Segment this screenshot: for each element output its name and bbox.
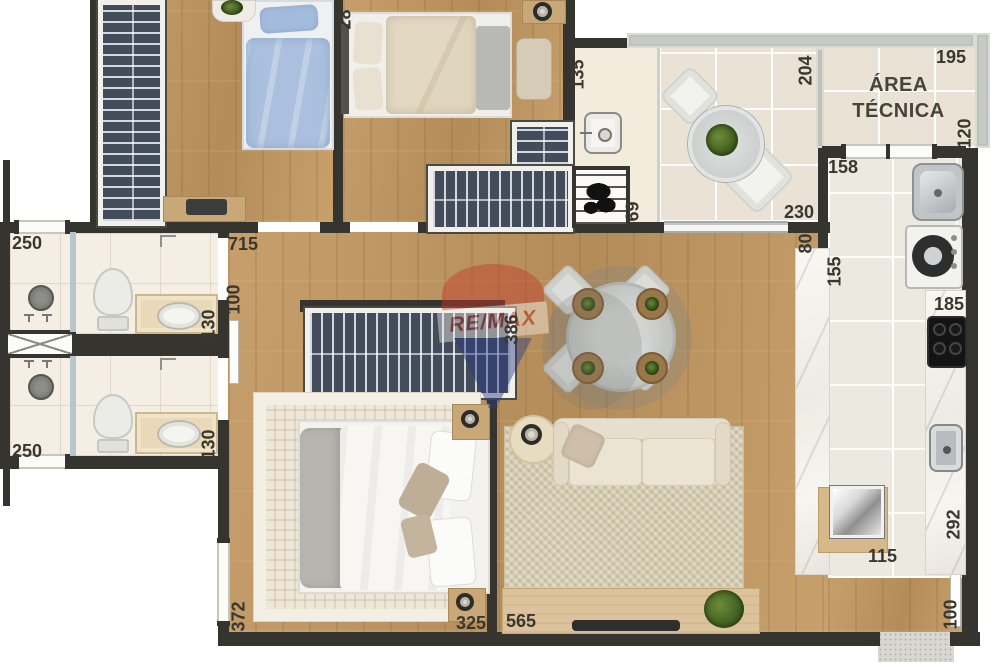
bathroom1-window [14, 220, 70, 234]
sink-icon [157, 420, 201, 448]
dim-bath1-width: 130 [197, 304, 221, 344]
dim-pass-width: 80 [793, 226, 819, 260]
dim-grill-width: 135 [564, 52, 592, 96]
wall [70, 334, 218, 356]
burner [949, 342, 962, 355]
washer-knob [951, 263, 957, 269]
shower-glass-panel [70, 232, 76, 332]
master-bed [298, 420, 490, 594]
washer-knob [951, 235, 957, 241]
place-setting [636, 352, 668, 384]
toilet-icon [93, 394, 133, 454]
dim-kitchen-width: 115 [868, 546, 897, 567]
dim-grill-depth: 69 [621, 192, 645, 230]
dim-text: 80 [796, 233, 817, 253]
dim-area-tecnica-width: 195 [936, 47, 966, 68]
dim-bedroom2-top: 28 [332, 0, 358, 38]
area-tecnica-label: ÁREA TÉCNICA [826, 60, 971, 136]
dim-text: 155 [825, 256, 846, 286]
closet-rod [132, 5, 134, 221]
dim-living-width: 565 [506, 611, 536, 632]
duvet [386, 16, 476, 114]
floor-plan: ÁREA TÉCNICA [0, 0, 1000, 667]
toilet-tank [97, 439, 129, 453]
dim-text: 100 [941, 599, 962, 629]
speaker-icon [533, 2, 552, 21]
closet-rod [310, 353, 510, 355]
dim-text: 28 [335, 9, 356, 29]
dim-text: 69 [623, 201, 644, 221]
plant-icon [706, 124, 738, 156]
plant-icon [704, 590, 744, 628]
dim-kitchen-length: 292 [940, 502, 968, 546]
dim-service-width: 158 [828, 157, 858, 178]
place-setting [636, 288, 668, 320]
shower-valve-icon [24, 314, 34, 316]
double-bed [344, 12, 512, 118]
sofa-armrest [715, 422, 731, 486]
wall [70, 456, 218, 469]
candle-icon [521, 424, 542, 445]
dim-hall-length: 715 [228, 234, 258, 255]
dim-text: 386 [502, 314, 523, 344]
wall [563, 38, 627, 48]
dim-master-window: 372 [226, 596, 252, 636]
washing-machine [905, 225, 963, 289]
dim-bath2-window: 250 [12, 441, 42, 462]
shower-head-icon [28, 285, 54, 311]
shower-valve-icon [24, 360, 34, 362]
glass-panel [830, 486, 884, 538]
wall [950, 632, 980, 646]
shower-valve-icon [42, 360, 52, 362]
toilet-icon [93, 268, 133, 332]
dim-master-width: 325 [456, 613, 486, 634]
dim-text: 204 [796, 55, 817, 85]
toilet-bowl [93, 394, 133, 439]
dim-text: 135 [568, 59, 589, 89]
single-bed [242, 0, 334, 150]
faucet-icon [934, 189, 942, 197]
dim-text: 120 [955, 118, 976, 148]
burner [949, 323, 962, 336]
dim-service-depth: 155 [822, 250, 848, 292]
dim-text: 130 [199, 429, 220, 459]
sofa [553, 418, 731, 488]
sofa-seat [642, 438, 715, 486]
lamp-icon [461, 410, 479, 428]
lamp-icon [456, 593, 474, 611]
plant-icon [221, 0, 243, 15]
window-center-tick [886, 144, 890, 159]
mattress-foot [476, 26, 510, 110]
closet-lower [428, 166, 573, 232]
laptop-icon [186, 199, 227, 215]
salad-plate [581, 361, 595, 375]
faucet-icon [943, 446, 951, 454]
cooktop-icon [927, 316, 967, 368]
balcony-railing-top [627, 33, 975, 48]
closet-rod [433, 199, 568, 201]
shower-head-icon [28, 374, 54, 400]
faucet-stem [580, 132, 592, 134]
balcony-divider-line [657, 48, 660, 222]
place-setting [572, 352, 604, 384]
wall [490, 632, 880, 646]
pillow [259, 4, 319, 34]
washer-knob [951, 249, 957, 255]
toilet-tank [97, 316, 129, 331]
wall [218, 456, 229, 540]
sink-icon [157, 302, 201, 330]
washer-drum [912, 235, 954, 277]
wall [218, 632, 490, 646]
wardrobe [98, 0, 165, 226]
duvet [246, 38, 330, 148]
dim-bath1-window: 250 [12, 233, 42, 254]
dim-balcony-width: 204 [793, 50, 819, 90]
dim-balcony-door: 230 [784, 202, 814, 223]
dim-living-length: 386 [498, 308, 526, 350]
laundry-tank [912, 163, 964, 221]
bathroom2-door-swing-mark [160, 358, 176, 370]
dim-text: 100 [224, 284, 245, 314]
dim-area-tecnica-depth: 120 [951, 112, 979, 154]
dim-hall-width: 100 [222, 280, 246, 318]
tv-icon [572, 620, 680, 631]
bench [516, 38, 552, 100]
burner [933, 342, 946, 355]
burner [933, 323, 946, 336]
shower-glass-panel [70, 356, 76, 456]
dim-text: 372 [229, 601, 250, 631]
salad-plate [645, 297, 659, 311]
salad-plate [645, 361, 659, 375]
wall [320, 222, 350, 233]
faucet-icon [598, 128, 612, 142]
master-closet [305, 308, 515, 398]
dim-text: 292 [944, 509, 965, 539]
throw-blanket [300, 428, 344, 588]
shower-valve-icon [42, 314, 52, 316]
dim-entry-width: 100 [938, 594, 964, 634]
shaft [4, 330, 76, 358]
toilet-bowl [93, 268, 133, 316]
support-basin [584, 112, 622, 154]
master-bedroom-door-leaf [229, 320, 239, 384]
salad-plate [581, 297, 595, 311]
wall [3, 160, 10, 222]
bathroom1-door-swing-mark [160, 235, 176, 247]
dim-counter-width: 185 [934, 294, 964, 315]
place-setting [572, 288, 604, 320]
balcony-sliding-door [664, 221, 788, 233]
entry-hall-floor [878, 632, 954, 662]
kitchen-sink [929, 424, 963, 472]
dim-bath2-width: 130 [197, 424, 221, 464]
pillow [352, 67, 384, 111]
dim-text: 130 [199, 309, 220, 339]
